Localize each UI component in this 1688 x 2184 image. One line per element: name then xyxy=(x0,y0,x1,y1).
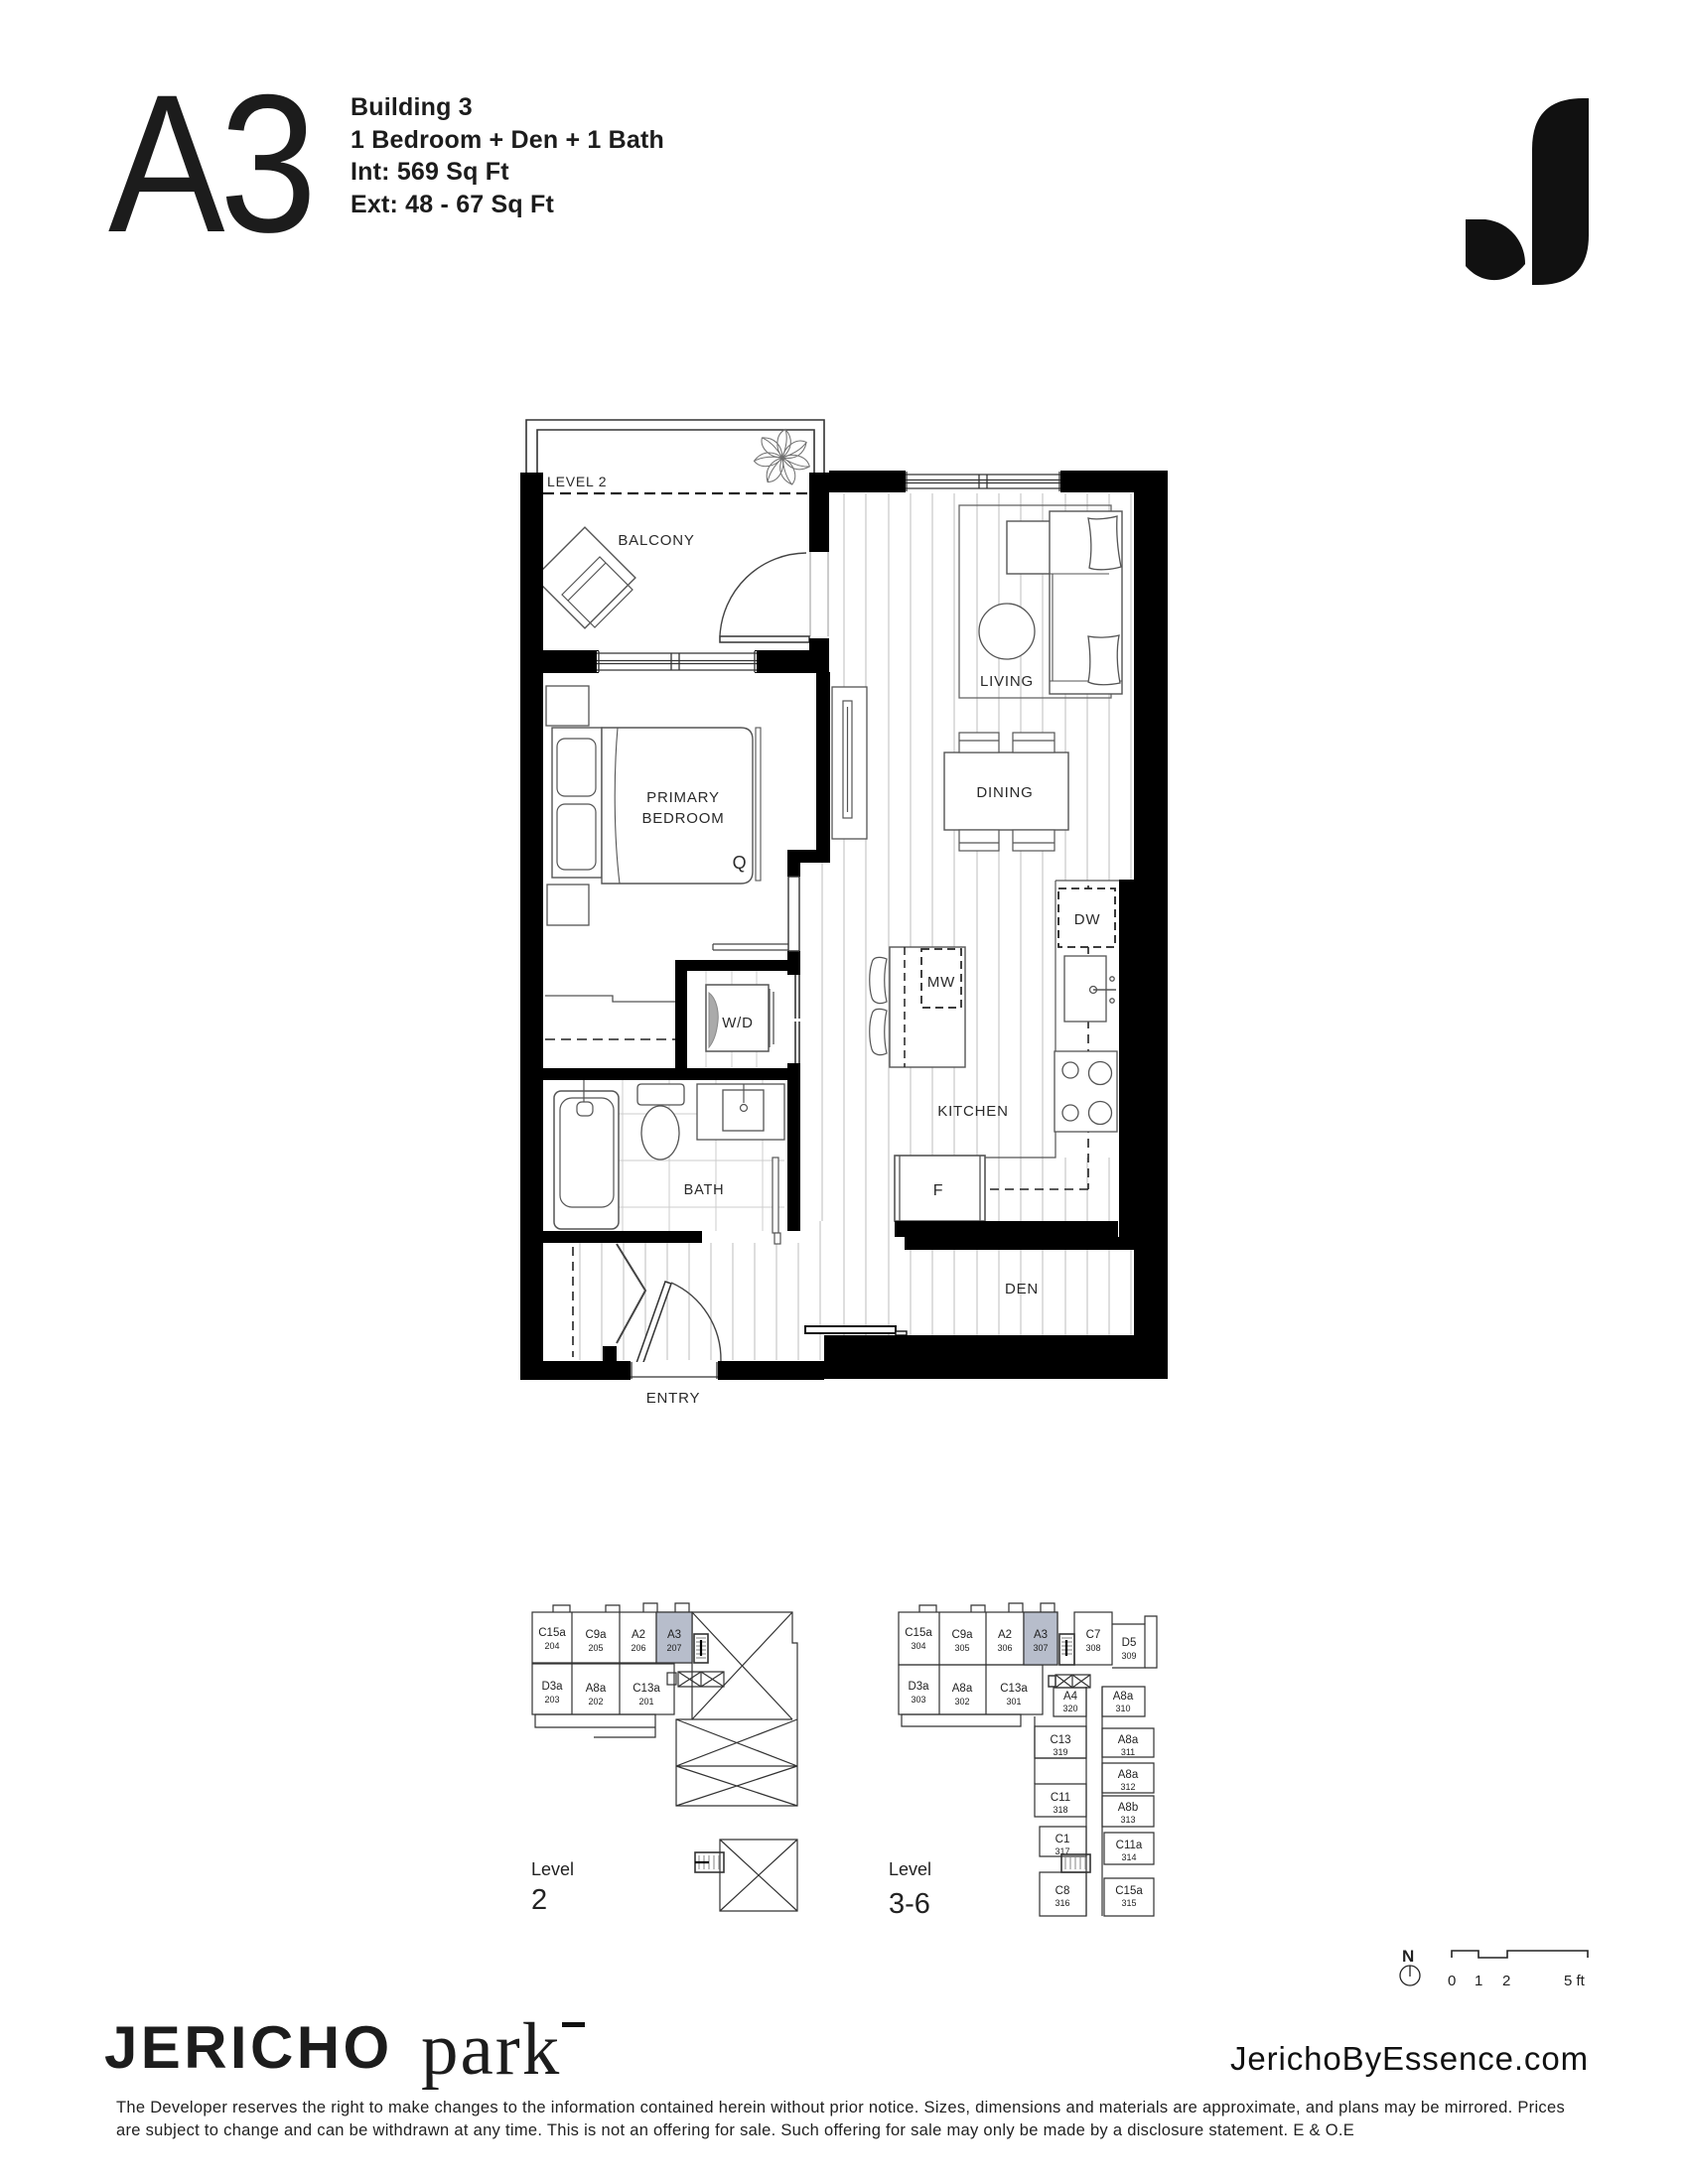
svg-text:D3a: D3a xyxy=(541,1681,563,1693)
svg-text:C1: C1 xyxy=(1055,1834,1070,1845)
svg-text:302: 302 xyxy=(954,1697,969,1706)
svg-text:C13a: C13a xyxy=(633,1683,660,1695)
svg-text:A8a: A8a xyxy=(586,1683,607,1695)
svg-text:Level: Level xyxy=(889,1859,931,1879)
svg-text:ENTRY: ENTRY xyxy=(646,1390,701,1407)
svg-text:307: 307 xyxy=(1033,1643,1048,1653)
svg-text:318: 318 xyxy=(1053,1805,1067,1815)
svg-text:301: 301 xyxy=(1006,1697,1021,1706)
svg-text:D3a: D3a xyxy=(908,1681,929,1693)
svg-text:205: 205 xyxy=(588,1643,603,1653)
svg-text:5 ft: 5 ft xyxy=(1564,1973,1586,1989)
svg-text:DEN: DEN xyxy=(1005,1281,1039,1297)
svg-text:KITCHEN: KITCHEN xyxy=(937,1103,1008,1120)
svg-text:A3: A3 xyxy=(1034,1629,1048,1641)
svg-text:LIVING: LIVING xyxy=(980,673,1034,690)
svg-text:309: 309 xyxy=(1121,1651,1136,1661)
svg-text:C11a: C11a xyxy=(1116,1840,1143,1851)
svg-text:206: 206 xyxy=(631,1643,645,1653)
svg-text:A2: A2 xyxy=(632,1629,645,1641)
svg-text:313: 313 xyxy=(1120,1815,1135,1825)
svg-text:A8a: A8a xyxy=(1118,1769,1139,1781)
svg-text:A8b: A8b xyxy=(1118,1802,1138,1814)
svg-text:2: 2 xyxy=(1502,1973,1510,1989)
svg-text:D5: D5 xyxy=(1122,1637,1137,1649)
svg-text:2: 2 xyxy=(531,1884,547,1916)
svg-text:BEDROOM: BEDROOM xyxy=(641,810,724,827)
svg-text:MW: MW xyxy=(927,974,955,991)
svg-text:C9a: C9a xyxy=(585,1629,607,1641)
svg-text:319: 319 xyxy=(1053,1747,1067,1757)
svg-text:A8a: A8a xyxy=(1113,1691,1134,1703)
svg-text:DINING: DINING xyxy=(976,784,1033,801)
svg-text:C7: C7 xyxy=(1086,1629,1101,1641)
svg-text:305: 305 xyxy=(954,1643,969,1653)
svg-text:202: 202 xyxy=(588,1697,603,1706)
svg-text:C9a: C9a xyxy=(951,1629,973,1641)
svg-text:306: 306 xyxy=(997,1643,1012,1653)
svg-text:320: 320 xyxy=(1062,1704,1077,1713)
svg-text:207: 207 xyxy=(666,1643,681,1653)
svg-text:312: 312 xyxy=(1120,1782,1135,1792)
svg-text:Level: Level xyxy=(531,1859,574,1879)
svg-text:201: 201 xyxy=(638,1697,653,1706)
svg-text:1: 1 xyxy=(1475,1973,1482,1989)
svg-text:W/D: W/D xyxy=(722,1015,754,1031)
svg-text:315: 315 xyxy=(1121,1898,1136,1908)
svg-text:3-6: 3-6 xyxy=(889,1888,930,1920)
svg-text:C13a: C13a xyxy=(1000,1683,1028,1695)
svg-text:204: 204 xyxy=(544,1641,559,1651)
svg-text:311: 311 xyxy=(1121,1747,1135,1757)
svg-text:C11: C11 xyxy=(1051,1792,1070,1804)
svg-text:A3: A3 xyxy=(667,1629,681,1641)
svg-text:317: 317 xyxy=(1055,1846,1069,1856)
svg-text:203: 203 xyxy=(544,1695,559,1705)
svg-text:A4: A4 xyxy=(1063,1691,1078,1703)
svg-text:C8: C8 xyxy=(1055,1885,1070,1897)
svg-text:A8a: A8a xyxy=(952,1683,973,1695)
svg-text:C15a: C15a xyxy=(905,1627,932,1639)
svg-text:304: 304 xyxy=(911,1641,925,1651)
svg-text:310: 310 xyxy=(1115,1704,1130,1713)
svg-text:DW: DW xyxy=(1074,911,1101,928)
svg-text:BALCONY: BALCONY xyxy=(618,532,694,549)
svg-text:F: F xyxy=(933,1182,944,1199)
svg-text:LEVEL 2: LEVEL 2 xyxy=(547,474,607,489)
svg-text:0: 0 xyxy=(1448,1973,1456,1989)
svg-text:N: N xyxy=(1402,1947,1414,1966)
svg-text:BATH: BATH xyxy=(684,1182,725,1198)
svg-text:A2: A2 xyxy=(998,1629,1012,1641)
svg-text:C15a: C15a xyxy=(538,1627,566,1639)
svg-text:303: 303 xyxy=(911,1695,925,1705)
svg-text:C15a: C15a xyxy=(1115,1885,1143,1897)
svg-text:308: 308 xyxy=(1085,1643,1100,1653)
svg-text:PRIMARY: PRIMARY xyxy=(646,789,720,806)
svg-text:316: 316 xyxy=(1055,1898,1069,1908)
svg-text:A8a: A8a xyxy=(1118,1734,1139,1746)
svg-text:Q: Q xyxy=(733,853,748,873)
svg-text:314: 314 xyxy=(1121,1852,1136,1862)
svg-text:C13: C13 xyxy=(1050,1734,1070,1746)
